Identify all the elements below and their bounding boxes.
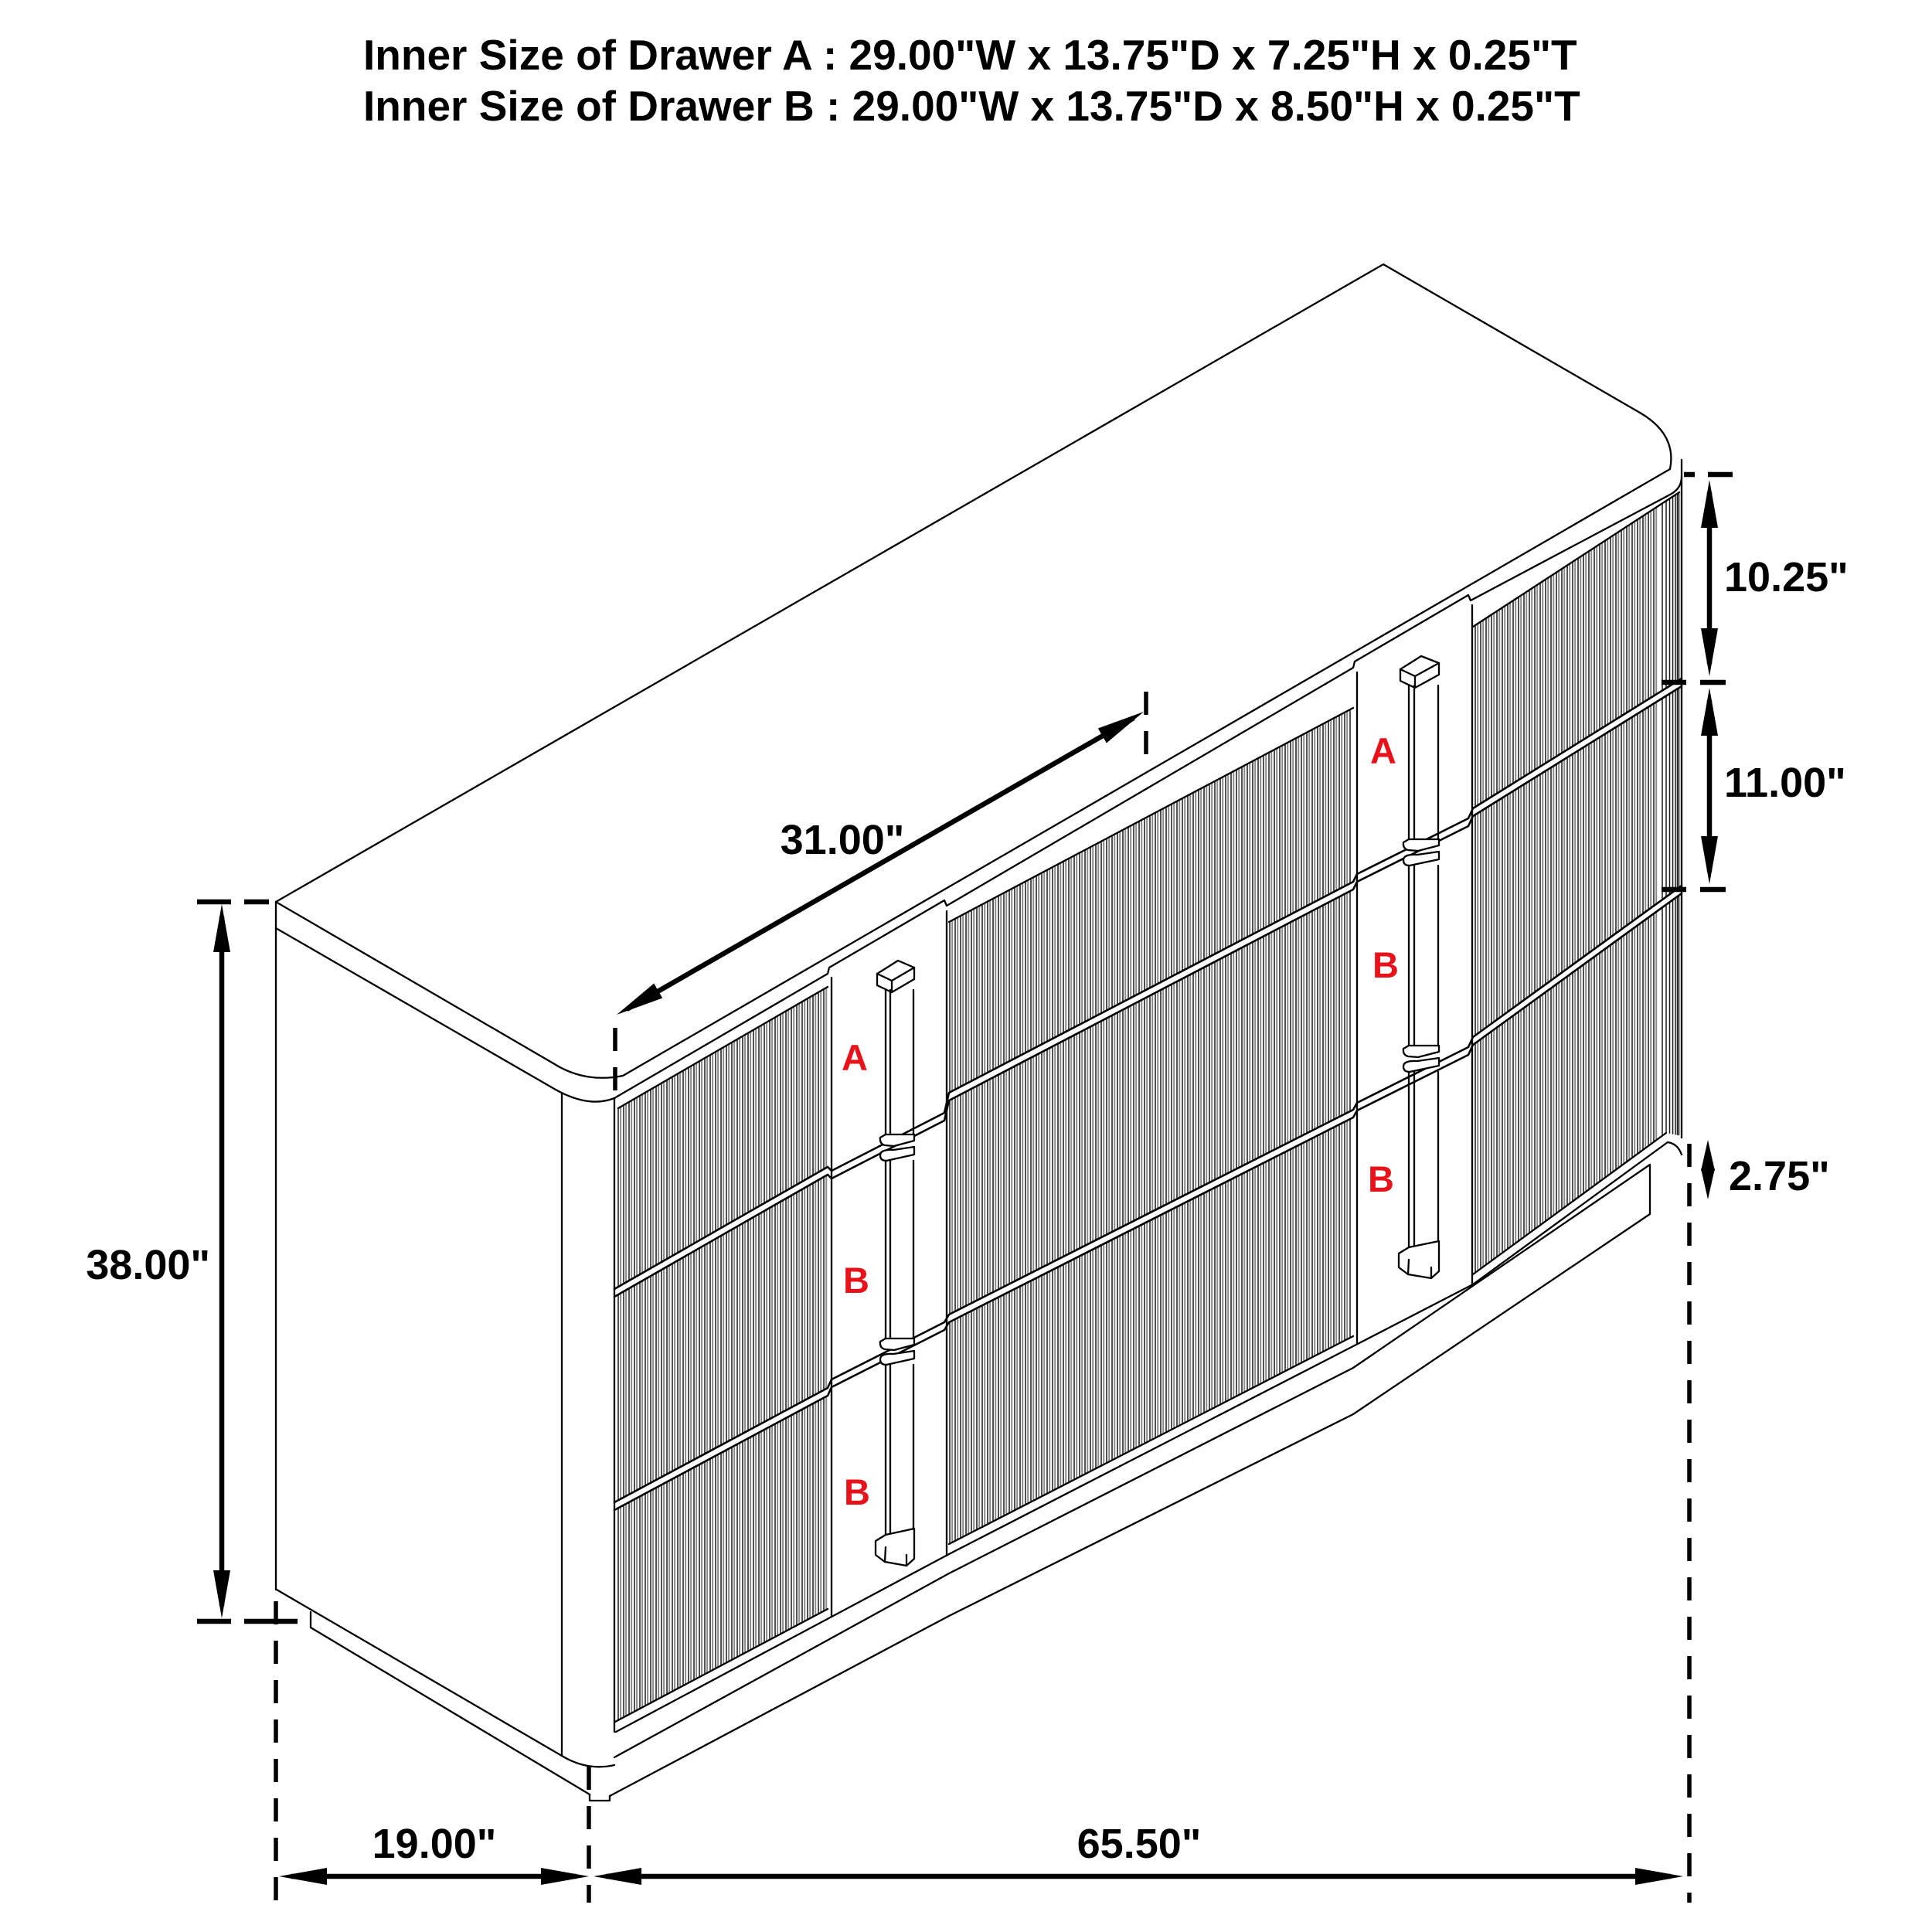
svg-text:Inner Size of Drawer B : 29.00: Inner Size of Drawer B : 29.00"W x 13.75… (363, 82, 1580, 130)
svg-text:10.25": 10.25" (1724, 554, 1849, 600)
svg-text:2.75": 2.75" (1729, 1153, 1830, 1199)
svg-text:B: B (843, 1260, 869, 1301)
svg-text:A: A (842, 1037, 868, 1078)
svg-text:38.00": 38.00" (86, 1242, 210, 1288)
svg-text:19.00": 19.00" (372, 1821, 497, 1867)
svg-text:B: B (1372, 944, 1399, 985)
svg-text:11.00": 11.00" (1724, 760, 1846, 806)
svg-text:Inner Size of Drawer A : 29.00: Inner Size of Drawer A : 29.00"W x 13.75… (363, 31, 1577, 79)
svg-text:B: B (1368, 1158, 1394, 1199)
svg-text:B: B (844, 1471, 870, 1512)
svg-text:A: A (1370, 730, 1396, 771)
svg-text:31.00": 31.00" (781, 817, 905, 863)
svg-text:65.50": 65.50" (1077, 1821, 1202, 1867)
